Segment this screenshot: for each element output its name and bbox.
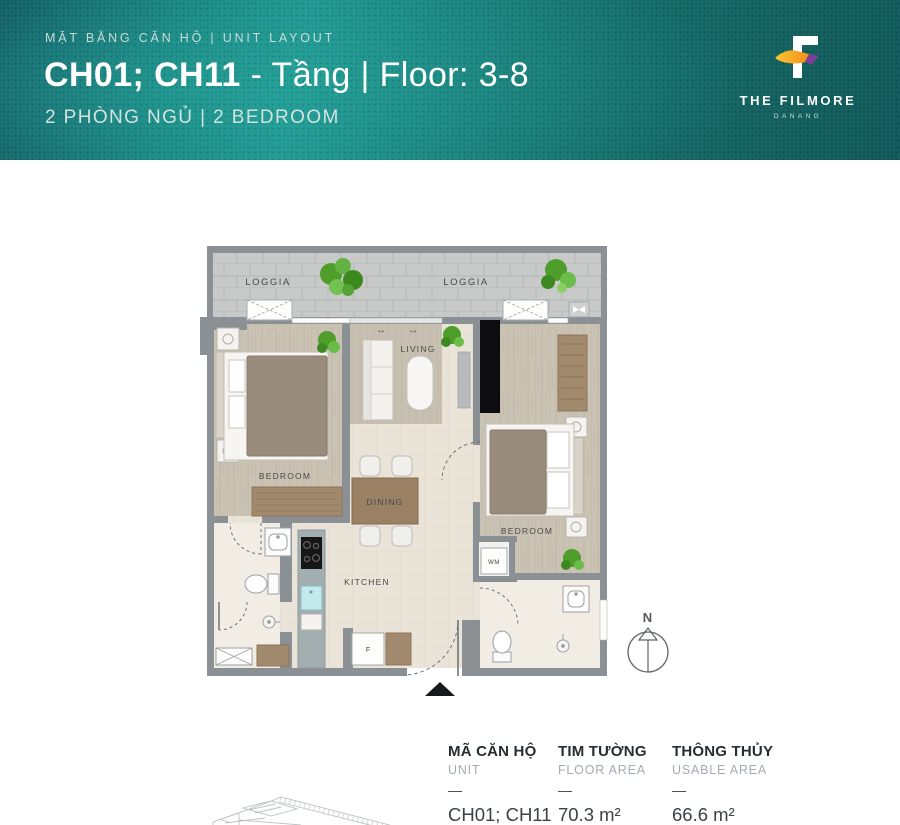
living-label: LIVING [400, 344, 435, 354]
info-divider: — [672, 785, 773, 795]
info-value-usable-area: 66.6 m² [672, 804, 773, 825]
info-value-unit: CH01; CH11 [448, 804, 552, 825]
info-col-usable-area: THÔNG THỦY USABLE AREA — 66.6 m² [672, 743, 773, 825]
logo-name: THE FILMORE [737, 93, 859, 108]
kitchen-label: KITCHEN [344, 577, 390, 587]
info-label-en: FLOOR AREA [558, 763, 647, 777]
washer-label: WM [488, 560, 500, 566]
loggia-right-label: LOGGIA [443, 277, 488, 288]
slide-arrow-icon: ↔ [376, 325, 386, 336]
loggia-left-label: LOGGIA [245, 277, 290, 288]
compass-n-label: N [643, 610, 653, 625]
wardrobe-black [480, 320, 500, 413]
ac-unit-icon [569, 302, 589, 317]
dining-label: DINING [367, 497, 404, 507]
info-divider: — [558, 785, 647, 795]
info-col-unit: MÃ CĂN HỘ UNIT — CH01; CH11 [448, 743, 552, 825]
slide-arrow-icon: ↔ [408, 325, 418, 336]
toilet-icon [493, 631, 511, 662]
sink-icon [301, 586, 322, 610]
floor-plan: ↔ ↔ [185, 240, 685, 700]
floor-range: - Tầng | Floor: 3-8 [241, 56, 529, 94]
bedroom-left-label: BEDROOM [259, 471, 311, 481]
filmore-logo: THE FILMORE DANANG [737, 34, 859, 120]
logo-city: DANANG [737, 113, 859, 120]
filmore-f-icon [774, 34, 822, 80]
stove-icon [301, 537, 322, 569]
info-label-en: USABLE AREA [672, 763, 773, 777]
compass-north-icon: N [628, 610, 668, 672]
building-axon-sketch [205, 782, 405, 825]
unit-layout-page: MẶT BẰNG CĂN HỘ | UNIT LAYOUT CH01; CH11… [0, 0, 900, 825]
entry-arrow-icon [425, 682, 455, 696]
header-banner: MẶT BẰNG CĂN HỘ | UNIT LAYOUT CH01; CH11… [0, 0, 900, 160]
bedroom-right-label: BEDROOM [501, 526, 553, 536]
info-col-floor-area: TIM TƯỜNG FLOOR AREA — 70.3 m² [558, 743, 647, 825]
info-label-vi: TIM TƯỜNG [558, 743, 647, 760]
info-label-en: UNIT [448, 763, 552, 777]
bedroom-count: 2 PHÒNG NGỦ | 2 BEDROOM [45, 107, 340, 129]
header-eyebrow: MẶT BẰNG CĂN HỘ | UNIT LAYOUT [45, 31, 335, 45]
info-label-vi: THÔNG THỦY [672, 743, 773, 760]
info-divider: — [448, 785, 552, 795]
unit-code: CH01; CH11 [44, 56, 241, 94]
toilet-icon [245, 574, 279, 594]
page-title: CH01; CH11 - Tầng | Floor: 3-8 [44, 56, 529, 95]
tv-console [458, 352, 470, 408]
info-value-floor-area: 70.3 m² [558, 804, 647, 825]
info-label-vi: MÃ CĂN HỘ [448, 743, 552, 760]
fridge-label: F [366, 647, 370, 654]
